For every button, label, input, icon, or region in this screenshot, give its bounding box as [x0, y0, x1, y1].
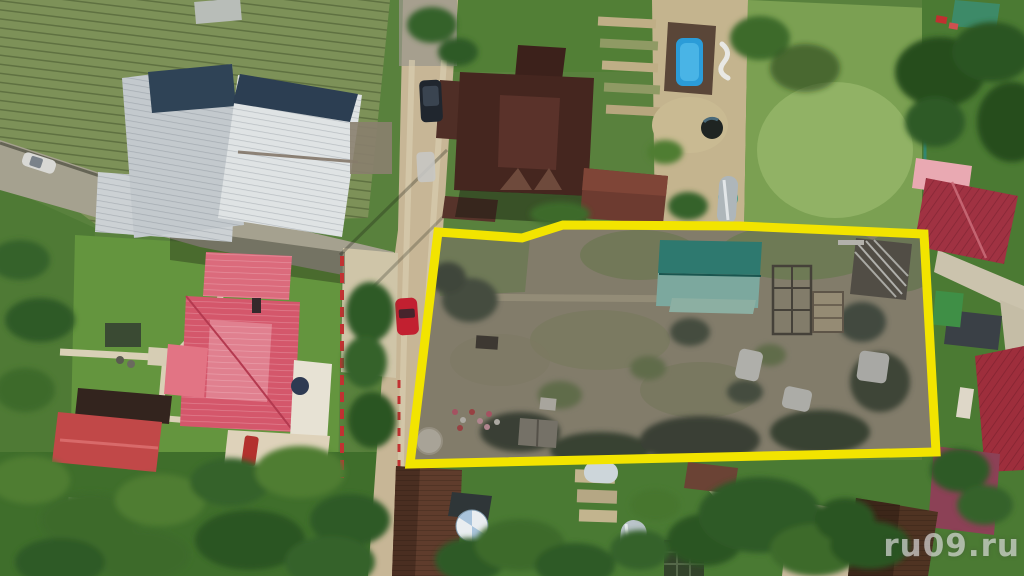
silver-object: [416, 152, 436, 183]
trampoline: [291, 377, 309, 395]
dark-van: [419, 79, 443, 122]
plot-dim-overlay: [410, 225, 936, 464]
watermark: ru09.ru: [883, 528, 1020, 564]
aerial-photo-canvas: [0, 0, 1024, 576]
pergola: [105, 323, 141, 347]
arched-greenhouse: [583, 461, 618, 484]
red-car: [395, 297, 420, 335]
pink-roof-west-gable: [164, 344, 208, 398]
navy-roof-section: [148, 64, 236, 113]
aerial-photo: ru09.ru: [0, 0, 1024, 576]
